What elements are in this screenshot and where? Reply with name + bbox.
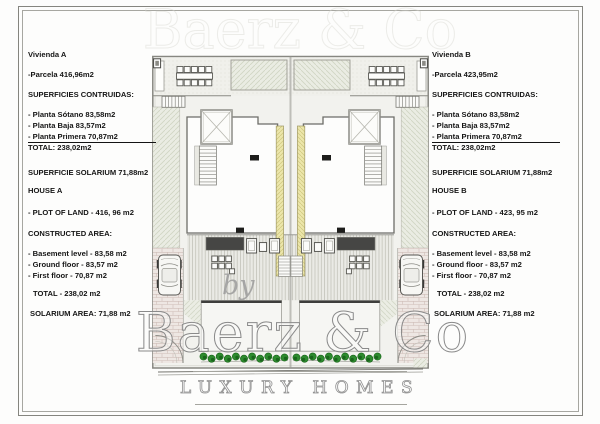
vivienda-b-planta-baja: - Planta Baja 83,57m2 [432,120,582,131]
house-b-plot-of-land: - PLOT OF LAND - 423, 95 m2 [432,207,582,218]
house-b-ground-floor: - Ground floor - 83,57 m2 [432,259,582,270]
vivienda-b-solarium: SUPERFICIE SOLARIUM 71,88m2 [432,167,582,178]
house-a-title: HOUSE A [28,185,168,196]
vivienda-a-planta-primera: - Planta Primera 70,87m2 [28,131,168,142]
house-b-solarium-area: SOLARIUM AREA: 71,88 m2 [432,308,582,319]
vivienda-b-total: TOTAL: 238,02m2 [432,142,582,153]
house-a-constructed-heading: CONSTRUCTED AREA: [28,228,168,239]
house-a-ground-floor: - Ground floor - 83,57 m2 [28,259,168,270]
vivienda-b-parcela: -Parcela 423,95m2 [432,69,582,80]
watermark-brand: Baerz & Co [136,301,470,364]
house-b-title: HOUSE B [432,185,582,196]
watermark-by: by [222,270,255,301]
house-a-solarium-area: SOLARIUM AREA: 71,88 m2 [28,308,168,319]
vivienda-a-planta-baja: - Planta Baja 83,57m2 [28,120,168,131]
house-a-total: TOTAL - 238,02 m2 [28,288,168,299]
vivienda-a-planta-sotano: - Planta Sótano 83,58m2 [28,109,168,120]
vivienda-a-superficies-heading: SUPERFICIES CONTRUIDAS: [28,89,168,100]
house-b-constructed-heading: CONSTRUCTED AREA: [432,228,582,239]
vivienda-a-title: Vivienda A [28,49,168,60]
house-b-first-floor: - First floor - 70,87 m2 [432,270,582,281]
watermark-tagline: LUXURY HOMES [180,378,420,398]
house-b-total: TOTAL - 238,02 m2 [432,288,582,299]
vivienda-b-title: Vivienda B [432,49,582,60]
vivienda-a-solarium: SUPERFICIE SOLARIUM 71,88m2 [28,167,168,178]
house-a-first-floor: - First floor - 70,87 m2 [28,270,168,281]
vivienda-b-details: Vivienda B -Parcela 423,95m2 SUPERFICIES… [432,49,582,319]
house-a-plot-of-land: - PLOT OF LAND - 416, 96 m2 [28,207,168,218]
vivienda-a-parcela: -Parcela 416,96m2 [28,69,168,80]
vivienda-b-planta-sotano: - Planta Sótano 83,58m2 [432,109,582,120]
house-a-basement: - Basement level - 83,58 m2 [28,248,168,259]
vivienda-b-planta-primera: - Planta Primera 70,87m2 [432,131,582,142]
vivienda-b-superficies-heading: SUPERFICIES CONTRUIDAS: [432,89,582,100]
house-b-basement: - Basement level - 83,58 m2 [432,248,582,259]
watermark-ghost: Baerz & Co [143,0,457,61]
vivienda-a-total: TOTAL: 238,02m2 [28,142,168,153]
vivienda-a-details: Vivienda A -Parcela 416,96m2 SUPERFICIES… [28,49,168,319]
